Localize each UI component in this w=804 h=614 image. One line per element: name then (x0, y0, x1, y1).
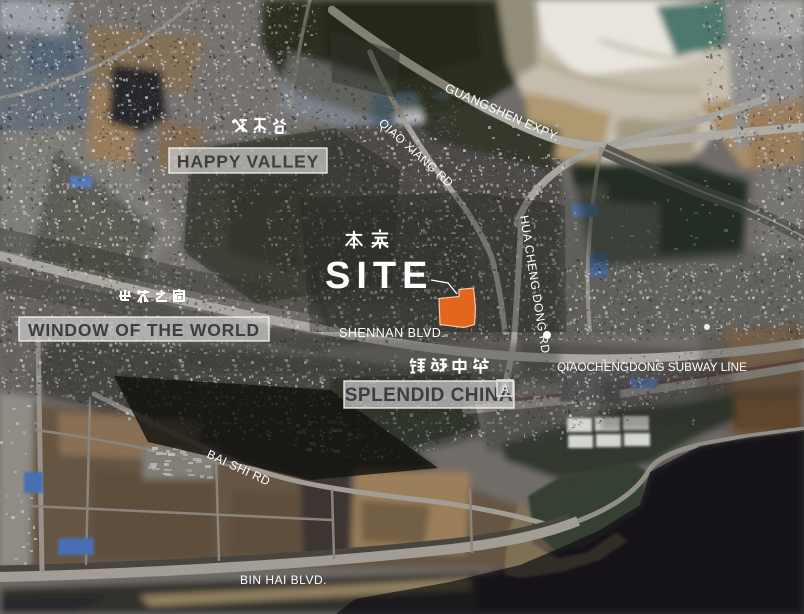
svg-text:A: A (501, 382, 510, 396)
svg-text:HAPPY VALLEY: HAPPY VALLEY (177, 152, 319, 172)
svg-text:QIAOCHENGDONG SUBWAY LINE: QIAOCHENGDONG SUBWAY LINE (557, 360, 747, 374)
svg-text:SPLENDID CHINA: SPLENDID CHINA (345, 385, 514, 406)
svg-text:WINDOW OF THE WORLD: WINDOW OF THE WORLD (28, 320, 260, 340)
svg-text:SHENNAN BLVD.: SHENNAN BLVD. (339, 326, 445, 340)
svg-text:SITE: SITE (325, 255, 433, 297)
svg-text:BIN HAI BLVD.: BIN HAI BLVD. (240, 573, 327, 587)
